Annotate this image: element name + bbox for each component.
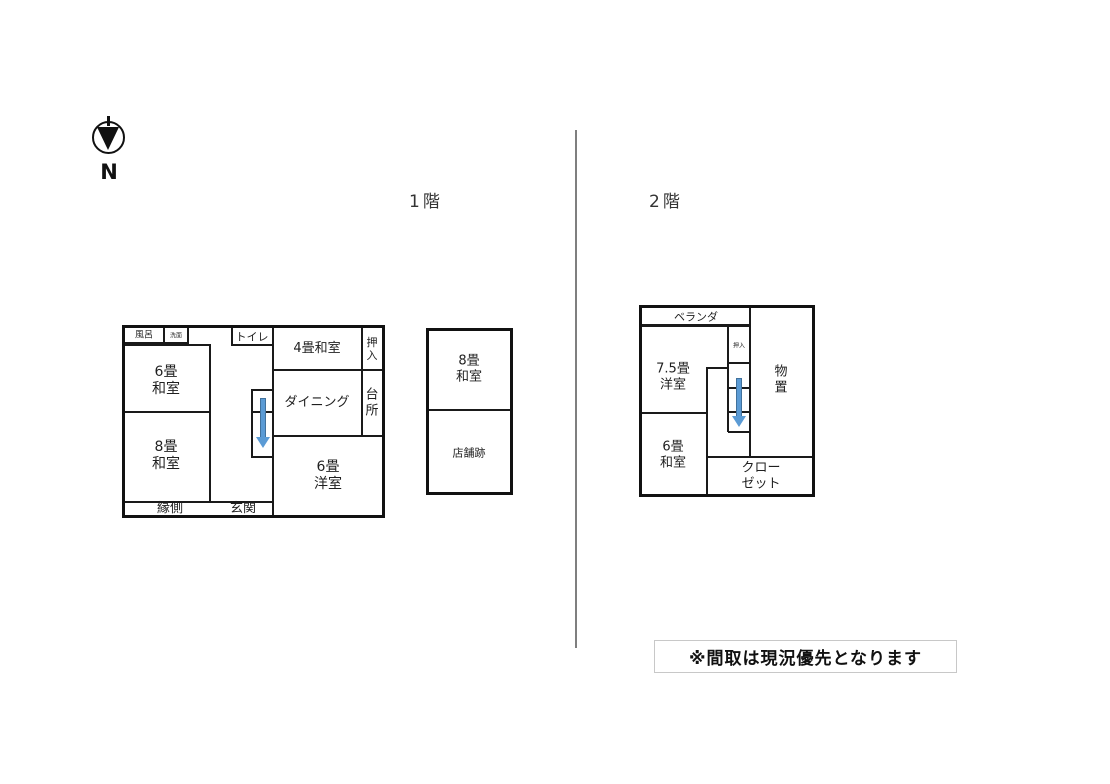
wall (125, 411, 211, 413)
wall (187, 328, 189, 344)
wall (209, 344, 211, 503)
wall (272, 328, 274, 515)
note-text: ※間取は現況優先となります (689, 644, 922, 669)
stair-wall (728, 431, 750, 433)
compass-tick-icon (107, 116, 110, 126)
room-label-engawa: 縁側 (157, 501, 183, 517)
room-label-veranda: ベランダ (674, 310, 718, 323)
room-label-tatami8: 8畳 和室 (152, 439, 180, 473)
stairs-down-arrow-icon (732, 378, 746, 427)
room-label-bath: 風呂 (135, 331, 153, 342)
north-arrow-icon (97, 127, 119, 150)
wall (706, 367, 729, 369)
room-label-toilet: トイレ (236, 330, 269, 343)
room-label-oshiire2f: 押入 (733, 342, 745, 349)
room-label-tatami4: 4畳和室 (293, 341, 340, 357)
wall (728, 362, 750, 364)
wall (273, 369, 382, 371)
wall (163, 328, 165, 344)
room-label-annex-tatami8: 8畳 和室 (456, 353, 482, 384)
floor2-title: 2階 (649, 187, 683, 212)
room-label-genkan: 玄関 (230, 501, 256, 517)
note-box: ※間取は現況優先となります (654, 640, 957, 673)
wall (273, 435, 382, 437)
room-label-closet: クローゼット (736, 460, 787, 491)
stair-wall (251, 389, 274, 391)
room-label-tatami6: 6畳 和室 (152, 364, 180, 398)
floor2-plan: ベランダ 押入 7.5畳 洋室 物 置 6畳 和室 クローゼット (639, 305, 815, 497)
wall (125, 344, 211, 346)
room-label-shop: 店舗跡 (453, 446, 486, 459)
wall (231, 328, 233, 345)
floor-divider-line (575, 130, 577, 648)
floor1-annex-plan: 8畳 和室 店舗跡 (426, 328, 513, 495)
floor1-title: 1階 (409, 187, 443, 212)
wall (706, 456, 812, 458)
room-label-dining: ダイニング (285, 395, 350, 411)
floorplan-page: N 1階 2階 風呂 洗面 トイレ 4畳和室 押 入 (0, 0, 1110, 784)
wall (706, 367, 708, 494)
stair-wall (251, 389, 253, 458)
wall (727, 326, 729, 432)
wall (429, 409, 510, 411)
room-label-western6: 6畳 洋室 (314, 459, 342, 493)
wall (231, 344, 274, 346)
room-label-kitchen: 台 所 (365, 387, 378, 418)
stair-wall (251, 456, 274, 458)
stairs-down-arrow-icon (256, 398, 270, 448)
floor1-plan: 風呂 洗面 トイレ 4畳和室 押 入 6畳 和室 ダイニング 台 所 8畳 和室… (122, 325, 385, 518)
wall (642, 412, 708, 414)
room-label-western75: 7.5畳 洋室 (656, 361, 690, 392)
room-label-tatami6-2f: 6畳 和室 (660, 439, 686, 470)
wall (749, 308, 751, 457)
room-label-storage: 物 置 (774, 364, 787, 395)
room-label-oshiire: 押 入 (367, 336, 378, 362)
compass-n-label: N (100, 160, 118, 184)
room-label-washroom: 洗面 (170, 332, 182, 339)
wall (361, 328, 363, 437)
wall (642, 324, 751, 327)
